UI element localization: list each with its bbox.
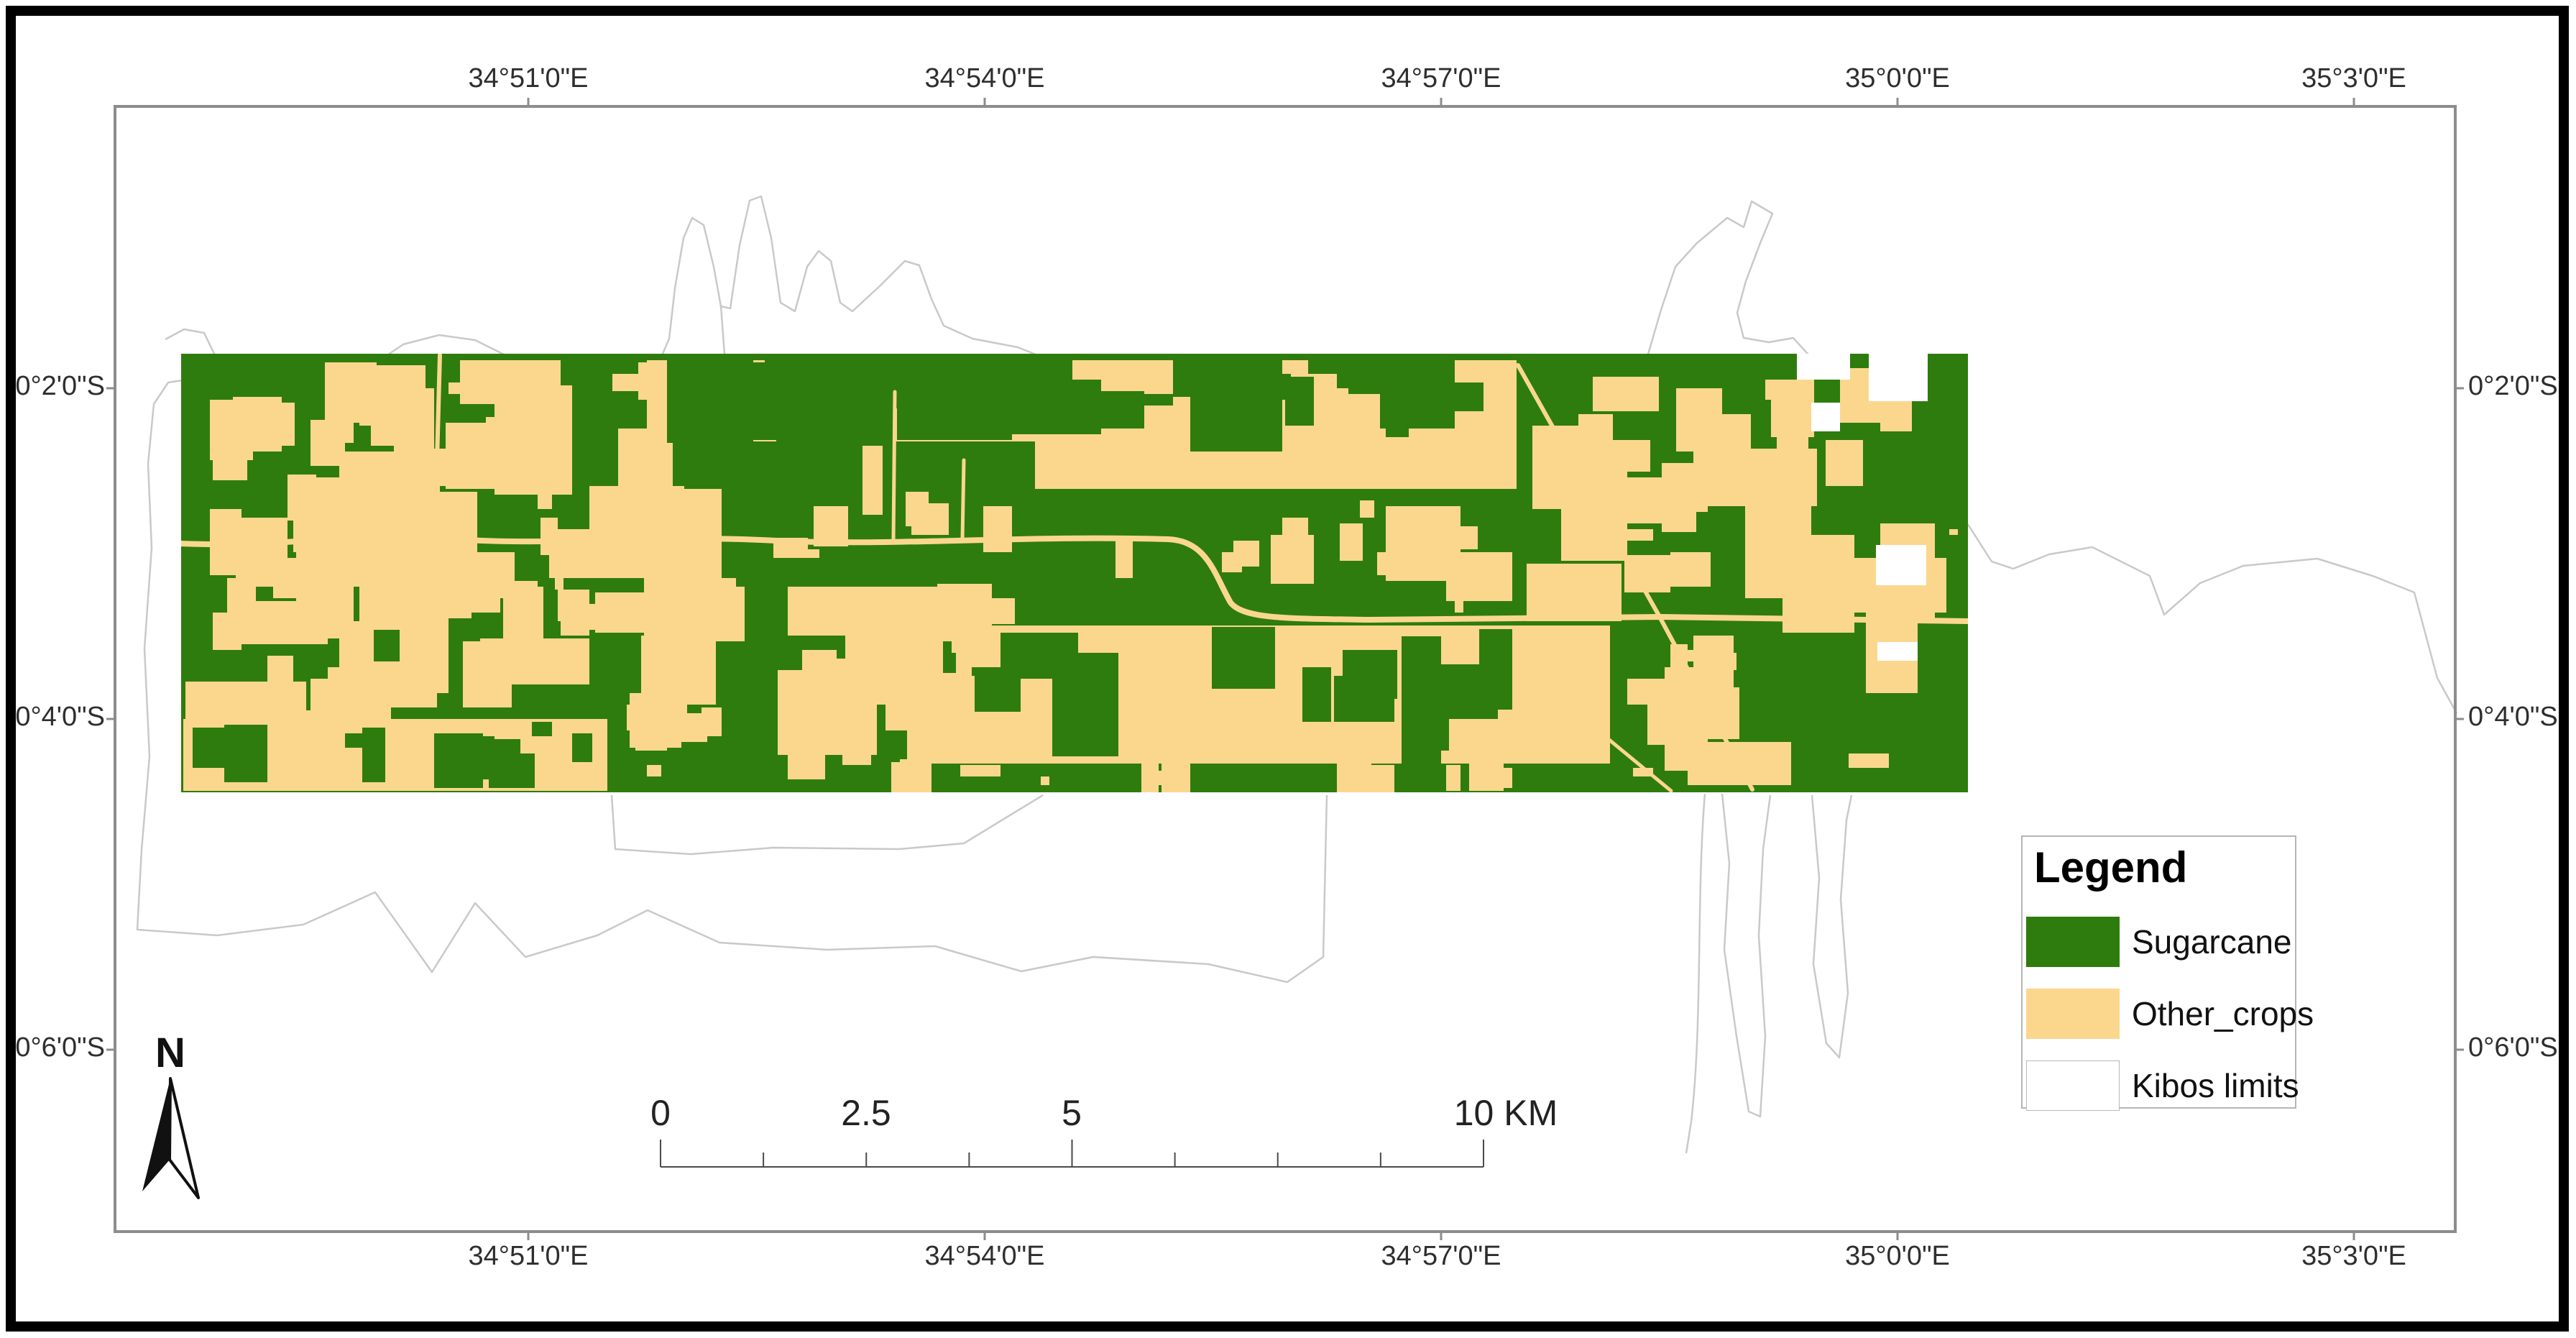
legend-item-label: Kibos limits bbox=[2132, 1066, 2299, 1105]
scale-bar-label: 10 KM bbox=[1454, 1093, 1558, 1133]
landcover-parcel bbox=[454, 736, 494, 779]
landcover-parcel bbox=[808, 549, 819, 558]
legend-swatch bbox=[2026, 917, 2120, 967]
latitude-label-left: 0°4'0"S bbox=[0, 702, 105, 733]
landcover-parcel bbox=[227, 578, 256, 615]
latitude-label-right: 0°6'0"S bbox=[2468, 1032, 2576, 1063]
north-arrow-left-wing bbox=[142, 1078, 170, 1191]
landcover-parcel bbox=[1440, 664, 1498, 719]
latitude-label-left: 0°6'0"S bbox=[0, 1032, 105, 1063]
kibos-boundary-line bbox=[1722, 794, 1770, 1117]
landcover-parcel bbox=[937, 587, 986, 633]
landcover-parcel bbox=[1173, 359, 1190, 397]
landcover-parcel bbox=[1624, 529, 1653, 541]
scale-bar-label: 0 bbox=[650, 1093, 671, 1133]
landcover-parcel bbox=[538, 495, 552, 509]
scale-bar-label: 2.5 bbox=[841, 1093, 891, 1133]
longitude-label-bottom: 35°3'0"E bbox=[2275, 1241, 2433, 1272]
legend: Legend SugarcaneOther_cropsKibos limits bbox=[2021, 835, 2296, 1109]
landcover-parcel bbox=[1662, 463, 1696, 532]
landcover-parcel bbox=[1233, 541, 1259, 567]
landcover-parcel bbox=[1179, 759, 1190, 794]
landcover-parcel bbox=[1271, 535, 1314, 584]
landcover-parcel bbox=[1452, 558, 1475, 578]
landcover-parcel bbox=[1000, 633, 1078, 679]
landcover-parcel bbox=[1676, 388, 1722, 452]
landcover-parcel bbox=[1693, 636, 1734, 722]
road-line bbox=[962, 460, 964, 539]
landcover-parcel bbox=[1340, 523, 1363, 561]
landcover-parcel bbox=[480, 638, 589, 684]
legend-swatch bbox=[2026, 989, 2120, 1039]
landcover-parcel bbox=[906, 492, 929, 526]
landcover-parcel bbox=[354, 368, 382, 382]
landcover-parcel bbox=[862, 446, 883, 515]
legend-item-label: Other_crops bbox=[2132, 994, 2314, 1033]
latitude-label-right: 0°2'0"S bbox=[2468, 371, 2576, 402]
landcover-parcel bbox=[1334, 676, 1394, 722]
landcover-parcel bbox=[667, 334, 736, 443]
landcover-parcel bbox=[641, 713, 707, 742]
landcover-parcel bbox=[561, 604, 624, 630]
road-line bbox=[893, 392, 895, 539]
landcover-parcel bbox=[1256, 368, 1271, 394]
landcover-parcel bbox=[1190, 357, 1236, 405]
landcover-parcel bbox=[1308, 359, 1337, 374]
longitude-label-top: 34°51'0"E bbox=[449, 63, 607, 94]
landcover-parcel bbox=[448, 382, 469, 394]
landcover-parcel bbox=[400, 676, 437, 699]
landcover-parcel bbox=[842, 730, 871, 765]
north-arrow-right-wing bbox=[170, 1078, 198, 1198]
landcover-parcel bbox=[233, 397, 282, 452]
landcover-parcel bbox=[1377, 552, 1417, 575]
landcover-parcel bbox=[983, 598, 1015, 624]
landcover-parcel bbox=[1141, 756, 1159, 794]
unclassified-hole bbox=[1811, 403, 1840, 431]
landcover-parcel bbox=[946, 388, 963, 397]
legend-swatch bbox=[2026, 1060, 2120, 1111]
landcover-parcel bbox=[1547, 699, 1578, 745]
landcover-parcel bbox=[854, 587, 943, 659]
landcover-parcel bbox=[917, 696, 963, 762]
landcover-parcel bbox=[572, 733, 592, 762]
unclassified-hole bbox=[1876, 545, 1926, 585]
landcover-parcel bbox=[1268, 374, 1291, 400]
kibos-boundary-line bbox=[215, 196, 1054, 369]
longitude-label-bottom: 34°54'0"E bbox=[906, 1241, 1064, 1272]
landcover-parcel bbox=[624, 449, 647, 489]
legend-item: Sugarcane bbox=[2023, 917, 2295, 967]
landcover-parcel bbox=[1593, 377, 1659, 411]
landcover-parcel bbox=[1949, 529, 1958, 535]
landcover-parcel bbox=[1348, 374, 1380, 394]
landcover-parcel bbox=[362, 584, 382, 627]
landcover-parcel bbox=[1693, 449, 1817, 506]
landcover-parcel bbox=[647, 765, 661, 776]
landcover-parcel bbox=[1469, 759, 1504, 791]
sugarcane-patch bbox=[181, 354, 1968, 360]
landcover-parcel bbox=[1115, 538, 1133, 578]
kibos-boundary-line bbox=[1686, 794, 1705, 1153]
unclassified-hole bbox=[1869, 354, 1928, 401]
landcover-parcel bbox=[1435, 526, 1478, 549]
longitude-label-top: 34°57'0"E bbox=[1362, 63, 1520, 94]
landcover-strip bbox=[181, 334, 1968, 802]
landcover-parcel bbox=[371, 388, 434, 446]
landcover-parcel bbox=[532, 722, 552, 736]
legend-item-label: Sugarcane bbox=[2132, 922, 2292, 961]
landcover-parcel bbox=[1826, 440, 1863, 486]
landcover-parcel bbox=[1849, 753, 1889, 768]
north-label: N bbox=[155, 1030, 185, 1076]
sugarcane-patch bbox=[1212, 627, 1275, 689]
landcover-parcel bbox=[1527, 564, 1621, 621]
map-canvas: 02.5510 KMN bbox=[0, 0, 2576, 1338]
legend-item: Other_crops bbox=[2023, 989, 2295, 1039]
legend-item: Kibos limits bbox=[2023, 1060, 2295, 1111]
landcover-parcel bbox=[1455, 598, 1463, 613]
longitude-label-bottom: 35°0'0"E bbox=[1818, 1241, 1977, 1272]
kibos-boundary-line bbox=[1812, 795, 1851, 1058]
landcover-parcel bbox=[1035, 391, 1144, 429]
landcover-parcel bbox=[776, 351, 894, 443]
landcover-parcel bbox=[339, 452, 394, 509]
landcover-parcel bbox=[1400, 506, 1435, 518]
landcover-parcel bbox=[931, 673, 972, 693]
landcover-parcel bbox=[273, 558, 319, 598]
north-arrow: N bbox=[142, 1030, 198, 1198]
landcover-parcel bbox=[1624, 555, 1670, 592]
longitude-label-bottom: 34°51'0"E bbox=[449, 1241, 607, 1272]
landcover-parcel bbox=[644, 578, 736, 641]
landcover-parcel bbox=[788, 687, 825, 779]
landcover-parcel bbox=[983, 506, 1012, 552]
landcover-parcel bbox=[193, 728, 233, 768]
scale-bar: 02.5510 KM bbox=[650, 1093, 1558, 1167]
landcover-parcel bbox=[1041, 776, 1049, 785]
landcover-parcel bbox=[1670, 552, 1711, 587]
longitude-label-bottom: 34°57'0"E bbox=[1362, 1241, 1520, 1272]
longitude-label-top: 34°54'0"E bbox=[906, 63, 1064, 94]
landcover-parcel bbox=[1302, 667, 1331, 722]
landcover-parcel bbox=[213, 613, 241, 650]
unclassified-hole bbox=[1797, 354, 1850, 380]
map-document: 02.5510 KMN Legend SugarcaneOther_cropsK… bbox=[0, 0, 2576, 1338]
landcover-parcel bbox=[549, 529, 627, 578]
longitude-label-top: 35°3'0"E bbox=[2275, 63, 2433, 94]
landcover-parcel bbox=[313, 567, 345, 615]
landcover-parcel bbox=[1360, 500, 1374, 518]
landcover-parcel bbox=[267, 656, 293, 696]
latitude-label-left: 0°2'0"S bbox=[0, 371, 105, 402]
landcover-parcel bbox=[497, 362, 535, 492]
longitude-label-top: 35°0'0"E bbox=[1818, 63, 1977, 94]
landcover-parcel bbox=[1386, 405, 1409, 437]
kibos-boundary-line bbox=[612, 795, 1043, 854]
landcover-parcel bbox=[1159, 771, 1176, 785]
scale-bar-label: 5 bbox=[1062, 1093, 1082, 1133]
landcover-parcel bbox=[1771, 380, 1814, 437]
landcover-parcel bbox=[1420, 713, 1449, 751]
landcover-parcel bbox=[1363, 765, 1394, 794]
landcover-parcel bbox=[368, 742, 385, 768]
latitude-label-right: 0°4'0"S bbox=[2468, 702, 2576, 733]
landcover-parcel bbox=[900, 759, 931, 802]
landcover-parcel bbox=[1138, 394, 1173, 405]
landcover-parcel bbox=[1446, 765, 1460, 791]
landcover-parcel bbox=[641, 636, 716, 705]
landcover-parcel bbox=[960, 765, 1000, 776]
legend-title: Legend bbox=[2034, 843, 2187, 892]
unclassified-hole bbox=[1877, 642, 1918, 661]
